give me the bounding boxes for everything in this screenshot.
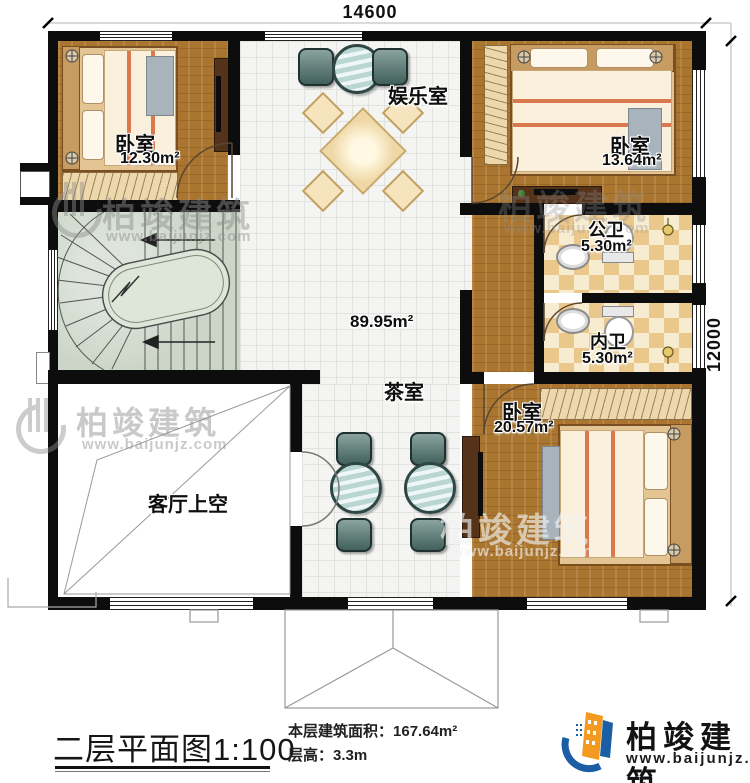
title-underline — [55, 766, 270, 769]
floor-height-info: 层高：3.3m — [288, 744, 367, 765]
bedroom-bottom-right-area: 20.57m² — [494, 419, 554, 437]
watermark-logo-icon — [52, 182, 98, 234]
bedroom-top-left-area: 12.30m² — [120, 150, 180, 168]
plan-title: 二层平面图1:100 — [53, 724, 296, 769]
living-room-void-label: 客厅上空 — [148, 488, 228, 517]
floor-height-label: 层高： — [288, 747, 333, 764]
entertainment-room-label: 娱乐室 — [388, 80, 448, 109]
watermark-url: www.baijunjz.com — [106, 228, 251, 245]
shower-symbols — [663, 218, 673, 364]
floor-area-info: 本层建筑面积：167.64m² — [288, 720, 457, 741]
private-bathroom-area: 5.30m² — [582, 350, 633, 368]
floor-plan-page: 柏竣建筑 www.baijunjz.com 柏竣建筑 www.baijunjz.… — [0, 0, 750, 783]
plan-linework — [0, 0, 750, 720]
brand-logo-icon — [556, 706, 620, 774]
floor-area-value: 167.64m² — [393, 723, 457, 740]
watermark-logo-icon — [16, 398, 62, 450]
dimension-right: 12000 — [704, 292, 725, 372]
brand-website: www.baijunjz.com — [626, 750, 750, 767]
floor-height-value: 3.3m — [333, 747, 367, 764]
dimension-top: 14600 — [320, 2, 420, 23]
stair-island — [97, 243, 236, 334]
public-bathroom-area: 5.30m² — [581, 238, 632, 256]
tea-room-label: 茶室 — [384, 376, 424, 405]
bedroom-top-right-area: 13.64m² — [602, 152, 662, 170]
floor-area-label: 本层建筑面积： — [288, 723, 393, 740]
porch-roof-outline — [8, 578, 668, 708]
title-underline-thin — [55, 771, 270, 772]
watermark-url: www.baijunjz.com — [82, 436, 227, 453]
hall-area-label: 89.95m² — [350, 312, 413, 332]
watermark-url: www.baijunjz.com — [452, 543, 597, 560]
brand-name: 柏竣建筑 — [626, 712, 750, 783]
watermark-url: www.baijunjz.com — [504, 220, 649, 237]
